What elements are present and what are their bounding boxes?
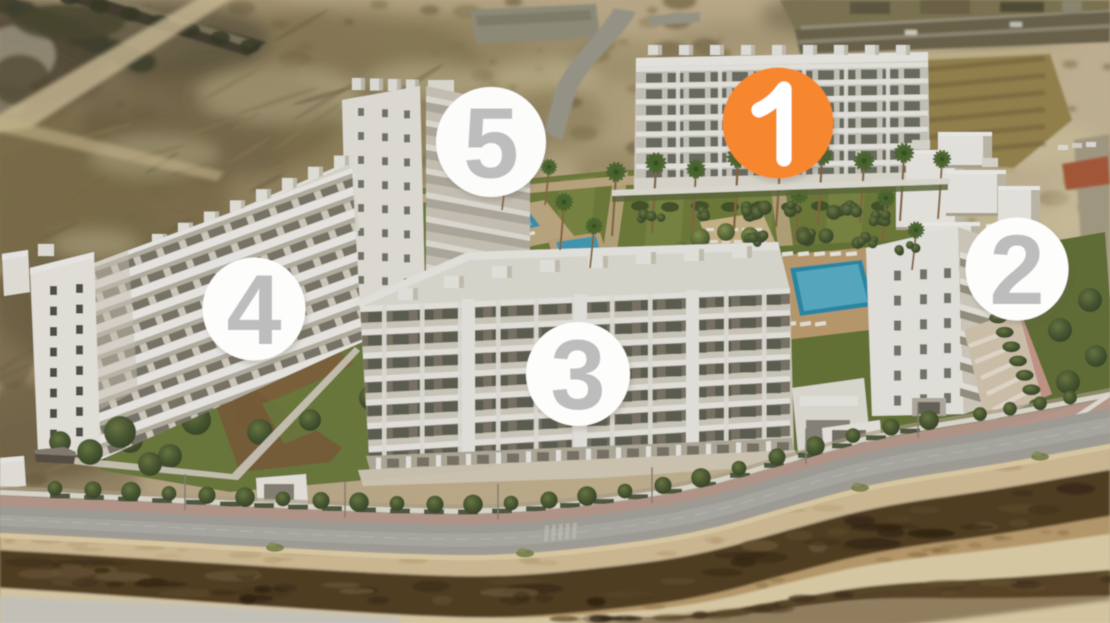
- svg-text:3: 3: [550, 319, 605, 430]
- svg-text:2: 2: [989, 214, 1044, 325]
- svg-text:4: 4: [226, 254, 281, 365]
- svg-text:5: 5: [463, 88, 519, 200]
